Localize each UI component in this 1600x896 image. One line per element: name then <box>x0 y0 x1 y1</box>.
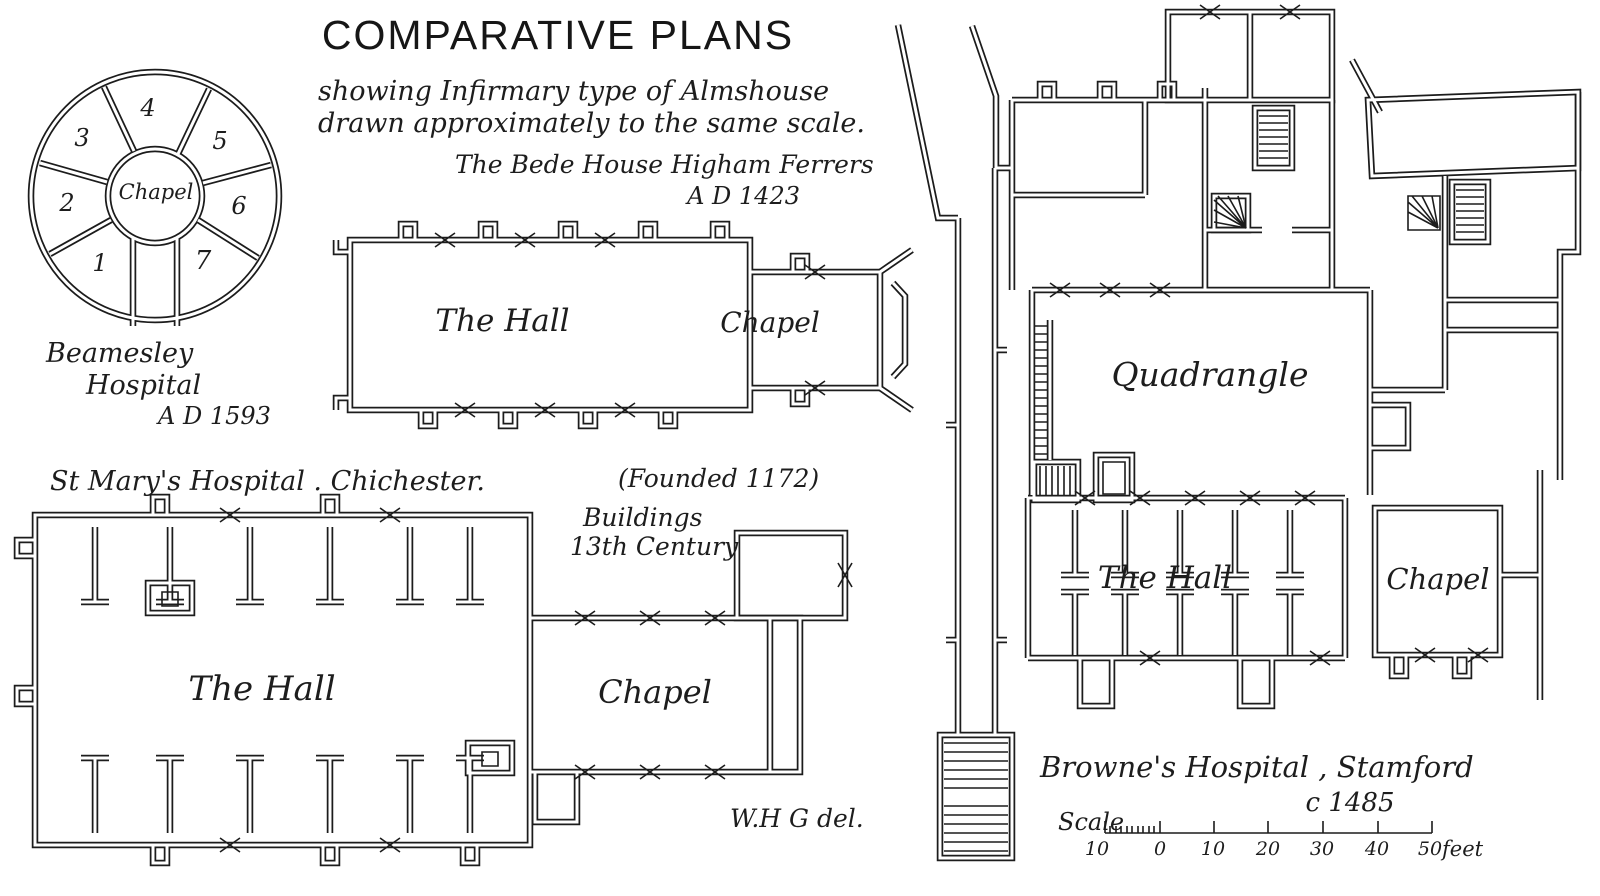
st-marys-hall-label: The Hall <box>172 672 352 708</box>
room-number-2: 2 <box>57 191 77 216</box>
scale-tick-20: 20 <box>1250 840 1286 860</box>
brownes-quadrangle-label: Quadrangle <box>1110 358 1310 393</box>
room-number-4: 4 <box>138 96 158 121</box>
page-title: COMPARATIVE PLANS <box>318 14 798 57</box>
spiral-stair <box>1408 196 1440 230</box>
room-number-1: 1 <box>90 251 110 276</box>
subtitle-line-1: showing Infirmary type of Almshouse <box>318 78 808 106</box>
bede-chapel-label: Chapel <box>720 308 820 337</box>
brownes-date: c 1485 <box>1280 790 1420 817</box>
bede-hall-label: The Hall <box>430 305 575 338</box>
scale-tick-40: 40 <box>1359 840 1395 860</box>
room-number-3: 3 <box>72 126 92 151</box>
room-number-5: 5 <box>210 129 230 154</box>
delineator-signature: W.H G del. <box>730 806 864 832</box>
bede-house-caption: The Bede House Higham Ferrers <box>455 152 810 178</box>
beamesley-name-line-2: Hospital <box>86 372 201 400</box>
scale-tick-0: 0 <box>1142 840 1178 860</box>
scale-tick-30: 30 <box>1304 840 1340 860</box>
brownes-caption: Browne's Hospital , Stamford <box>1040 752 1450 782</box>
subtitle-line-2: drawn approximately to the same scale. <box>318 110 793 138</box>
st-marys-caption: St Mary's Hospital . Chichester. <box>50 468 485 496</box>
brownes-hall-label: The Hall <box>1085 562 1245 595</box>
beamesley-chapel-label: Chapel <box>116 181 196 203</box>
st-marys-founded: (Founded 1172) <box>618 466 819 492</box>
bede-house-date: A D 1423 <box>640 184 800 209</box>
spiral-stair <box>1214 196 1246 228</box>
comparative-plans-sheet: COMPARATIVE PLANS showing Infirmary type… <box>0 0 1600 896</box>
room-number-6: 6 <box>229 194 249 219</box>
scale-tick-10: 10 <box>1195 840 1231 860</box>
scale-bar <box>1105 821 1432 833</box>
brownes-plan-walls <box>898 12 1578 858</box>
beamesley-date: A D 1593 <box>158 404 271 429</box>
scale-label: Scale <box>1058 810 1124 835</box>
st-marys-buildings-line-2: 13th Century <box>570 534 738 560</box>
st-marys-chapel-label: Chapel <box>590 676 720 710</box>
room-number-7: 7 <box>193 248 213 275</box>
brownes-chapel-label: Chapel <box>1382 564 1494 594</box>
scale-unit: feet <box>1442 838 1483 860</box>
beamesley-name-line-1: Beamesley <box>46 340 193 368</box>
bede-house-plan-walls <box>336 224 912 426</box>
stair-hatching <box>944 743 1008 851</box>
st-marys-buildings-line-1: Buildings <box>583 505 702 531</box>
scale-tick-10-left: 10 <box>1079 840 1115 860</box>
